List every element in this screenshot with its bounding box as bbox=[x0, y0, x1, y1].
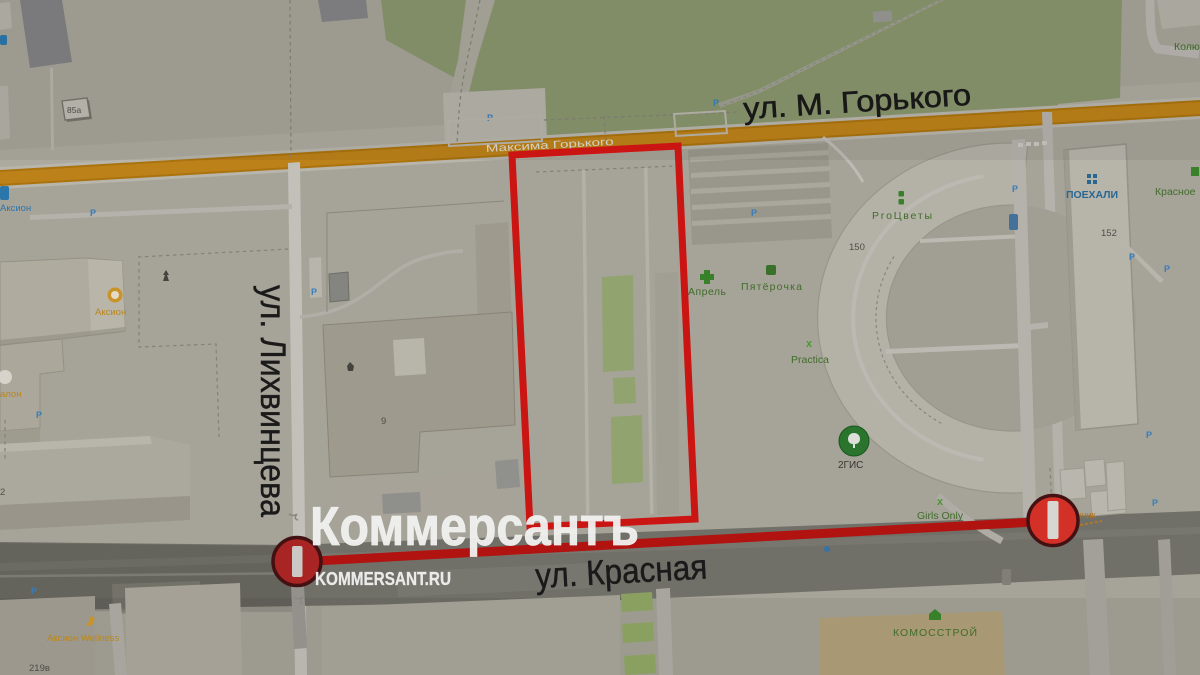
svg-text:Коммерсантъ: Коммерсантъ bbox=[310, 495, 639, 557]
svg-text:KOMMERSANT.RU: KOMMERSANT.RU bbox=[315, 569, 451, 589]
